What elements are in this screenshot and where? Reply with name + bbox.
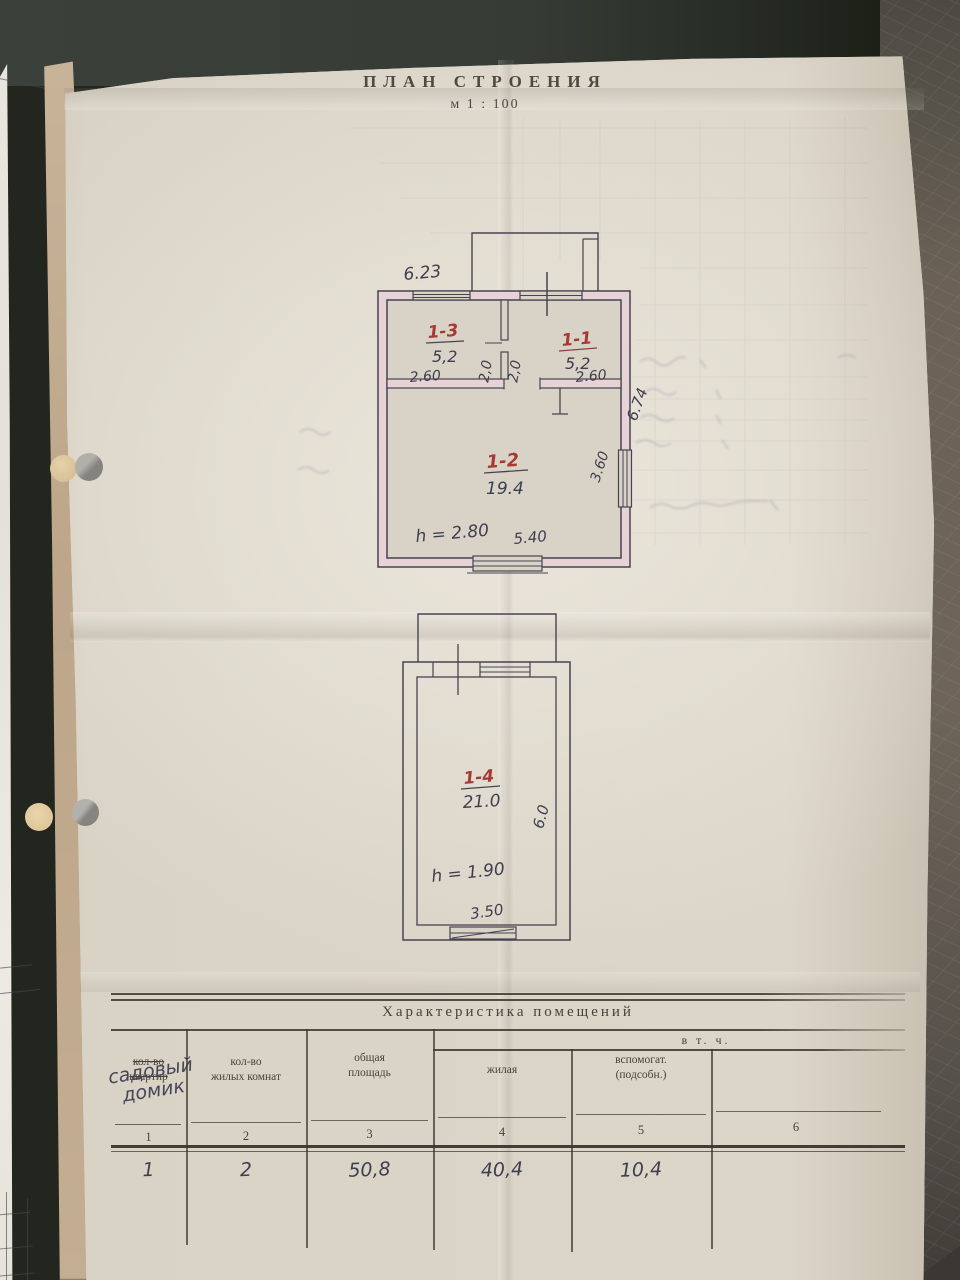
table-rule [438, 1117, 566, 1118]
table-rule [111, 1029, 905, 1031]
dim-width-bottom-lower: 3.50 [469, 900, 505, 922]
value-auxiliary-area: 10,4 [576, 1157, 707, 1184]
value-living-rooms: 2 [191, 1157, 302, 1183]
col3-number: 3 [311, 1127, 428, 1142]
dim-window-bottom: 5.40 [513, 527, 548, 548]
table-rule [115, 1124, 181, 1125]
col5-number: 5 [576, 1123, 706, 1138]
table-divider [433, 1029, 435, 1250]
table-rule [576, 1114, 706, 1115]
table-title: Характеристика помещений [111, 1004, 905, 1021]
col6-number: 6 [716, 1120, 876, 1135]
punch-hole [25, 803, 53, 831]
including-label: в т. ч. [651, 1033, 761, 1048]
characteristics-table: Характеристика помещений в т. ч. кол-во … [111, 993, 905, 1259]
room-14-area: 21.0 [462, 791, 501, 813]
room-14-number: 1-4 [463, 766, 495, 789]
dim-side-right-lower: 6.0 [529, 803, 553, 831]
dim-room13-width: 2.60 [409, 368, 441, 386]
table-rule [191, 1122, 301, 1123]
upper-plan-walls [378, 233, 632, 573]
dim-width-top: 6.23 [403, 262, 442, 285]
col4-header: жилая [438, 1063, 566, 1078]
col4-number: 4 [438, 1125, 566, 1140]
lower-plan-labels: 1-4 21.0 6.0 h = 1.90 3.50 [430, 766, 553, 923]
table-divider [711, 1049, 713, 1249]
dim-height-lower: h = 1.90 [430, 859, 505, 887]
room-12-area: 19.4 [486, 479, 524, 499]
table-rule [111, 993, 905, 995]
col2-header: кол-во жилых комнат [191, 1055, 301, 1085]
punch-hole [72, 799, 99, 826]
value-apartments: 1 [111, 1158, 187, 1183]
table-rule-heavy [111, 1145, 905, 1148]
scanned-document-photo: ПЛАН СТРОЕНИЯ м 1 : 100 [0, 0, 960, 1280]
col3-header: общая площадь [311, 1051, 428, 1081]
col2-number: 2 [191, 1129, 301, 1144]
table-rule [111, 1151, 905, 1152]
room-13-area: 5,2 [432, 347, 457, 366]
table-divider [571, 1049, 573, 1252]
table-rule [111, 999, 905, 1001]
value-total-area: 50,8 [311, 1157, 429, 1183]
room-11-number: 1-1 [561, 328, 593, 351]
dim-room11-width: 2.60 [575, 367, 608, 386]
table-divider [186, 1029, 188, 1245]
table-rule [433, 1049, 905, 1051]
table-rule [311, 1120, 428, 1121]
value-living-area: 40,4 [438, 1157, 567, 1183]
punch-hole [50, 455, 77, 482]
table-divider [306, 1029, 308, 1248]
room-12-number: 1-2 [486, 450, 520, 473]
col1-number: 1 [111, 1130, 186, 1145]
col5-header: вспомогат. (подсобн.) [576, 1053, 706, 1083]
punch-hole [75, 453, 103, 481]
table-rule [716, 1111, 881, 1112]
room-13-number: 1-3 [427, 321, 459, 343]
